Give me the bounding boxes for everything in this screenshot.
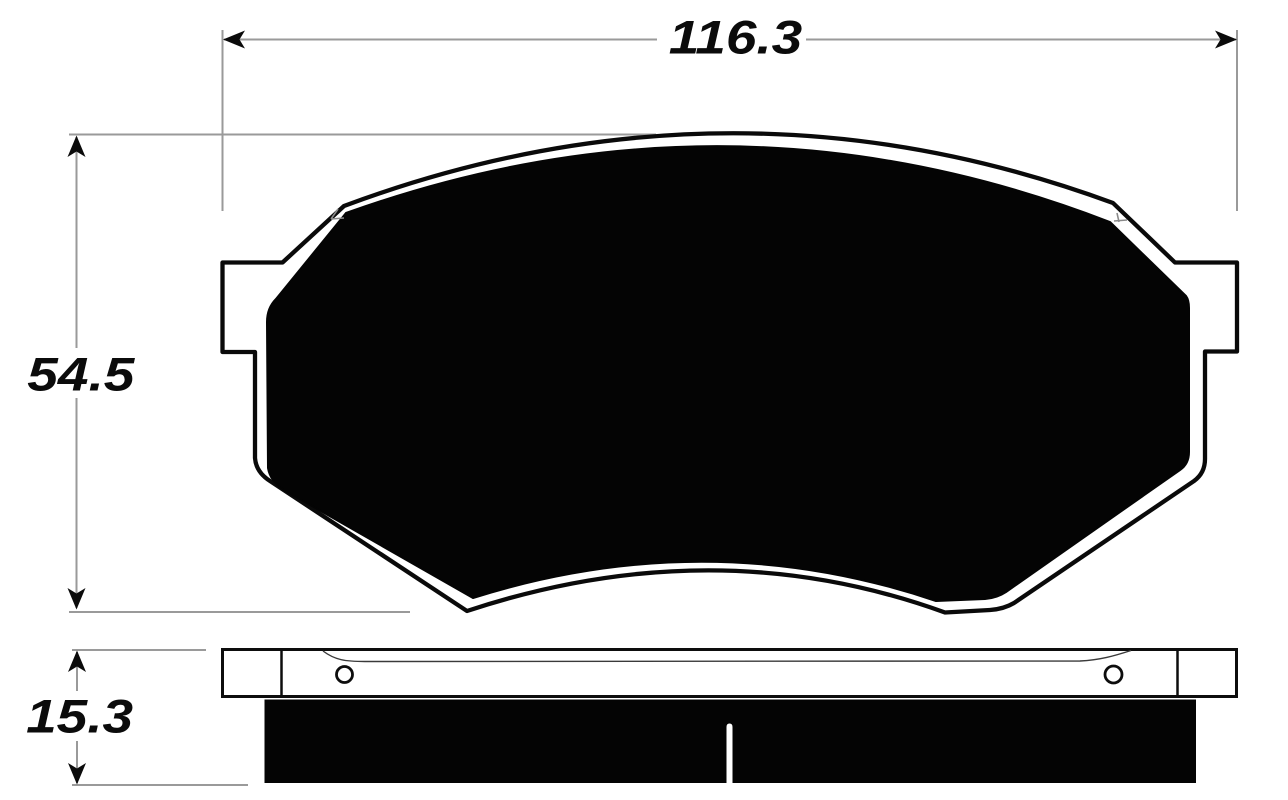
svg-text:15.3: 15.3: [26, 690, 133, 742]
svg-text:116.3: 116.3: [669, 11, 803, 63]
svg-text:54.5: 54.5: [27, 348, 136, 400]
